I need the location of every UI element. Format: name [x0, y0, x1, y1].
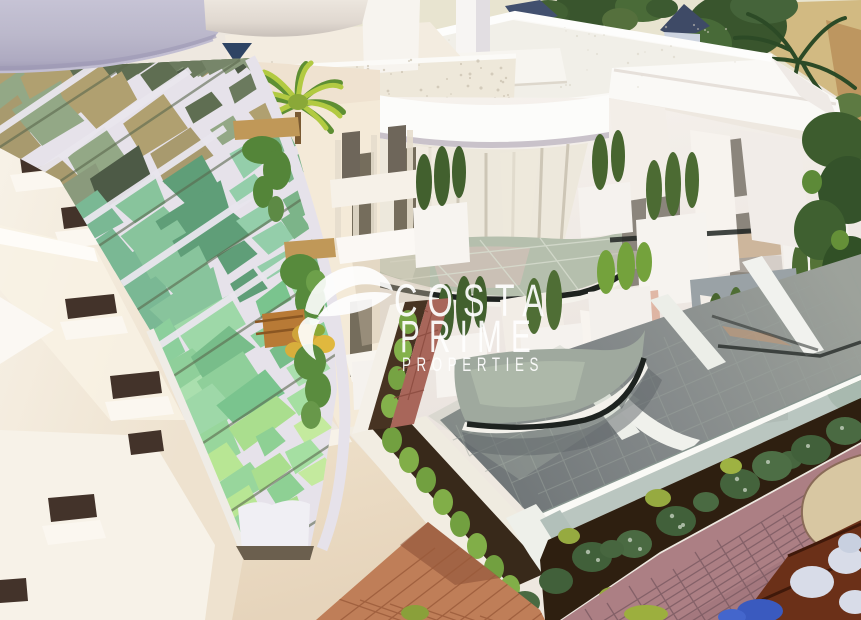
svg-text:PROPERTIES: PROPERTIES	[402, 355, 544, 376]
